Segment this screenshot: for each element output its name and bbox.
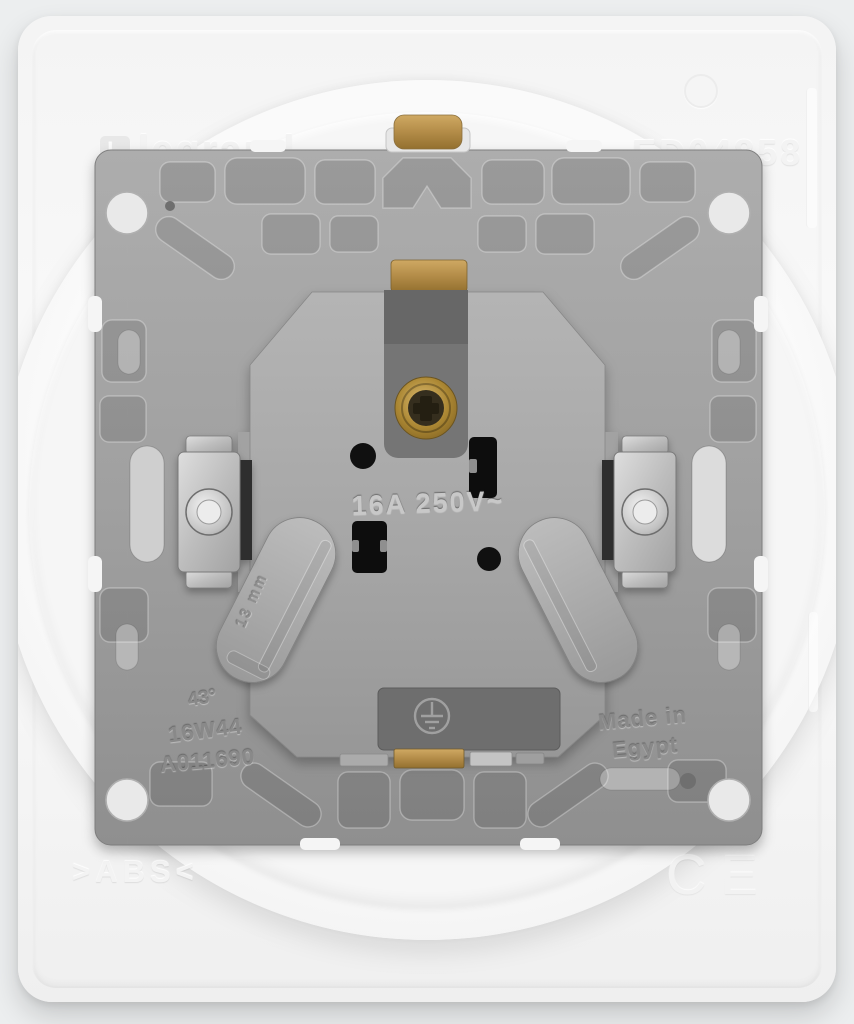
pin-hole-right <box>477 547 501 571</box>
product-photo-socket-rear: L legrand ED04858 >ABS< CE <box>0 0 854 1024</box>
mid-brass-tab <box>391 260 467 292</box>
pin-hole-left <box>350 443 376 469</box>
earth-brass-strip <box>394 749 464 768</box>
top-brass-contact <box>386 115 470 152</box>
terminal-channel <box>384 260 468 458</box>
pozidriv-screw-icon <box>395 377 457 439</box>
